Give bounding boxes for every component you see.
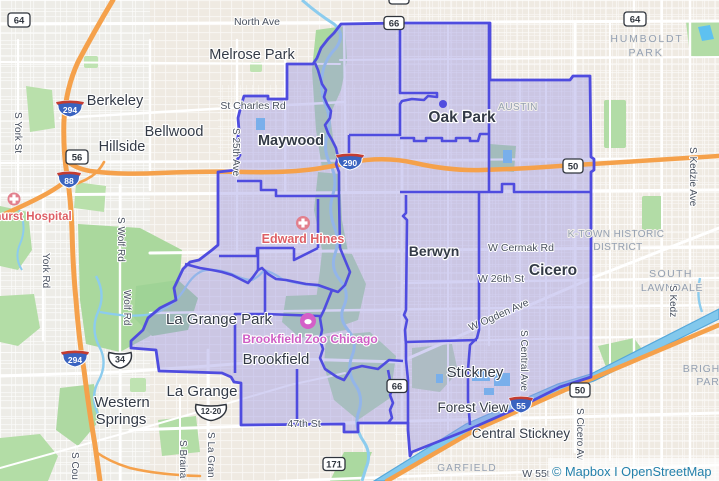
svg-text:S 25th Ave: S 25th Ave — [230, 128, 241, 177]
svg-text:S Braina: S Braina — [177, 440, 188, 479]
svg-text:hurst Hospital: hurst Hospital — [0, 211, 72, 223]
svg-text:Cicero: Cicero — [529, 262, 577, 279]
svg-text:AUSTIN: AUSTIN — [498, 102, 538, 113]
svg-text:34: 34 — [115, 354, 125, 364]
svg-text:GARFIELD: GARFIELD — [437, 463, 497, 474]
svg-text:56: 56 — [72, 153, 83, 164]
svg-text:BRIGHT: BRIGHT — [683, 363, 719, 375]
svg-text:66: 66 — [392, 382, 403, 393]
svg-text:PAR: PAR — [696, 376, 719, 388]
svg-text:W Cermak Rd: W Cermak Rd — [488, 242, 554, 254]
svg-text:66: 66 — [389, 19, 400, 30]
svg-text:Edward Hines: Edward Hines — [262, 232, 345, 246]
svg-text:88: 88 — [64, 176, 74, 186]
svg-text:S Kedz: S Kedz — [667, 285, 678, 317]
svg-text:171: 171 — [326, 460, 343, 471]
svg-text:S La Gran: S La Gran — [205, 432, 216, 478]
svg-text:S Central Ave: S Central Ave — [518, 330, 529, 391]
svg-text:Forest View: Forest View — [437, 400, 508, 415]
svg-text:Berkeley: Berkeley — [87, 93, 144, 109]
svg-text:W 26th St: W 26th St — [478, 273, 524, 285]
svg-text:55: 55 — [516, 401, 526, 411]
svg-text:Stickney: Stickney — [447, 364, 504, 381]
svg-text:PARK: PARK — [628, 47, 663, 59]
svg-text:K-TOWN HISTORIC: K-TOWN HISTORIC — [568, 229, 665, 240]
svg-text:Springs: Springs — [96, 411, 147, 428]
svg-text:W 55t: W 55t — [522, 468, 550, 480]
svg-text:DISTRICT: DISTRICT — [593, 242, 642, 253]
svg-text:Central Stickney: Central Stickney — [472, 426, 571, 441]
svg-text:12-20: 12-20 — [201, 407, 222, 416]
svg-text:S York St: S York St — [12, 112, 23, 153]
svg-text:Melrose Park: Melrose Park — [209, 47, 295, 63]
svg-text:64: 64 — [630, 15, 641, 26]
svg-text:S Wolf Rd: S Wolf Rd — [115, 217, 126, 262]
svg-text:Berwyn: Berwyn — [409, 243, 460, 259]
svg-text:47th St: 47th St — [287, 418, 320, 430]
svg-text:64: 64 — [14, 16, 25, 27]
svg-text:St Charles Rd: St Charles Rd — [220, 100, 286, 112]
svg-text:Bellwood: Bellwood — [145, 124, 204, 140]
svg-text:S Cicero Av: S Cicero Av — [574, 408, 585, 460]
svg-text:50: 50 — [568, 162, 579, 173]
svg-text:290: 290 — [343, 158, 357, 168]
svg-text:SOUTH: SOUTH — [649, 268, 693, 280]
svg-text:294: 294 — [63, 105, 77, 115]
svg-text:Brookfield Zoo Chicago: Brookfield Zoo Chicago — [242, 332, 377, 346]
svg-text:294: 294 — [68, 355, 82, 365]
svg-text:North Ave: North Ave — [234, 16, 280, 28]
svg-text:Hillside: Hillside — [99, 139, 146, 155]
svg-text:© Mapbox I OpenStreetMap: © Mapbox I OpenStreetMap — [552, 464, 712, 479]
svg-text:Oak Park: Oak Park — [428, 109, 496, 126]
svg-text:York Rd: York Rd — [40, 253, 51, 288]
svg-text:HUMBOLDT: HUMBOLDT — [610, 33, 683, 45]
svg-text:S Cou: S Cou — [69, 452, 80, 480]
svg-text:La Grange: La Grange — [167, 383, 238, 400]
svg-text:Maywood: Maywood — [258, 133, 324, 149]
svg-text:50: 50 — [575, 386, 586, 397]
svg-text:S Kedzie Ave: S Kedzie Ave — [687, 147, 698, 207]
svg-text:Wolf Rd: Wolf Rd — [121, 290, 132, 325]
svg-text:Brookfield: Brookfield — [243, 351, 310, 368]
svg-text:La Grange Park: La Grange Park — [166, 311, 272, 328]
svg-text:Western: Western — [94, 394, 150, 411]
